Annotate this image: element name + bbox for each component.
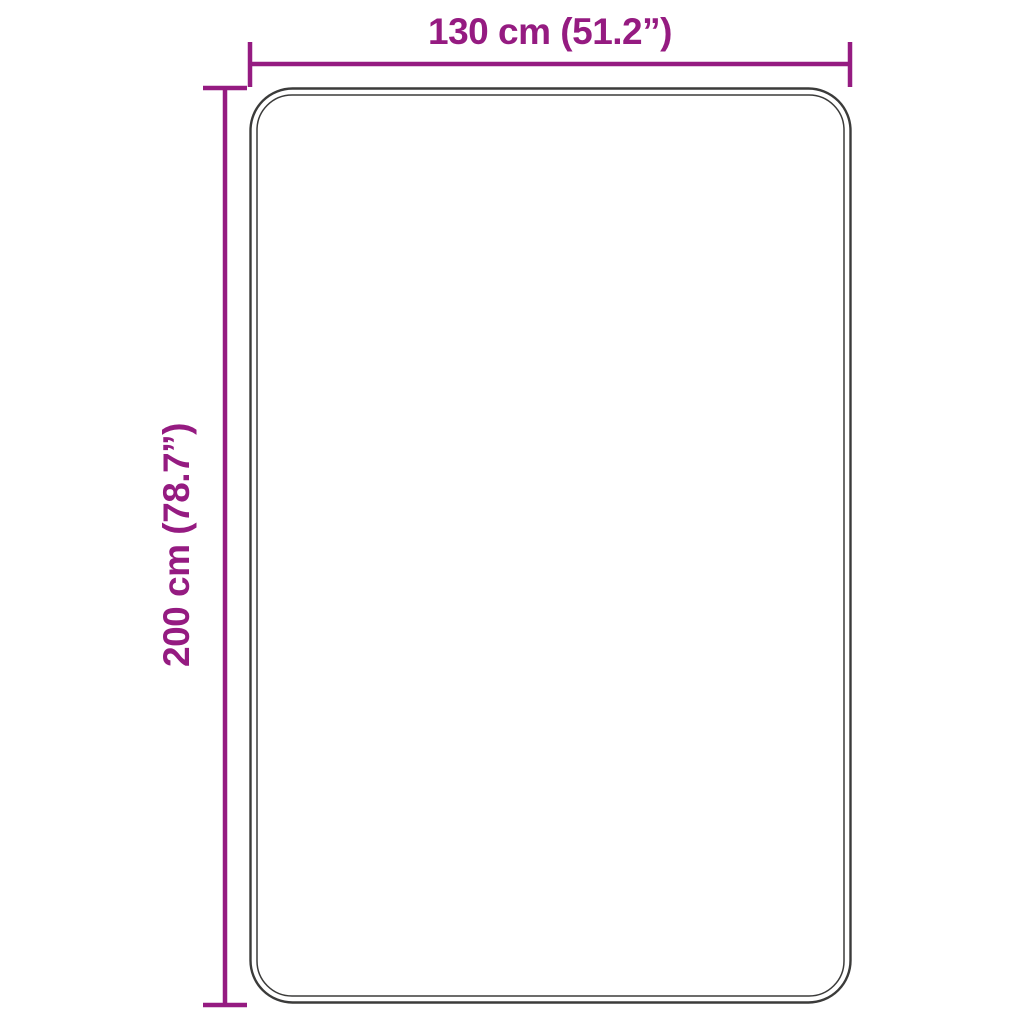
dimension-diagram-canvas: 130 cm (51.2”) 200 cm (78.7”) [0, 0, 1024, 1024]
height-dimension-label: 200 cm (78.7”) [156, 423, 197, 667]
product-outline-inner [257, 95, 844, 996]
product-outline-outer [251, 89, 851, 1003]
height-dimension-line [203, 88, 247, 1005]
width-dimension-label: 130 cm (51.2”) [428, 11, 672, 52]
rug-dimension-diagram: 130 cm (51.2”) 200 cm (78.7”) [0, 0, 1024, 1024]
